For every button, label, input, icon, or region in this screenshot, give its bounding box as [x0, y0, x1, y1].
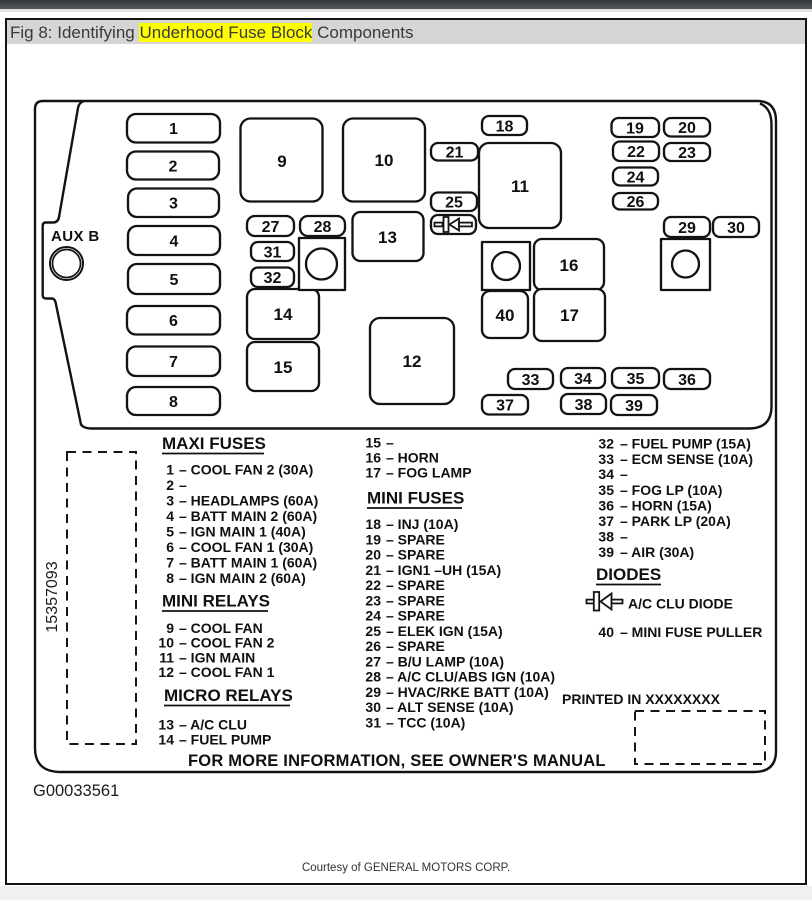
svg-text:– AIR (30A): – AIR (30A)	[620, 544, 694, 560]
svg-text:1: 1	[169, 121, 178, 138]
svg-text:24: 24	[365, 608, 381, 624]
svg-text:PRINTED IN XXXXXXXX: PRINTED IN XXXXXXXX	[562, 691, 721, 707]
svg-text:20: 20	[678, 120, 696, 137]
svg-text:23: 23	[678, 145, 696, 162]
svg-text:– IGN MAIN: – IGN MAIN	[179, 649, 255, 665]
svg-text:15357093: 15357093	[44, 561, 61, 632]
svg-text:– ALT SENSE (10A): – ALT SENSE (10A)	[386, 699, 514, 715]
svg-text:12: 12	[158, 664, 174, 680]
svg-text:–: –	[620, 529, 628, 545]
svg-text:31: 31	[365, 714, 381, 730]
svg-text:40: 40	[598, 624, 614, 640]
svg-text:27: 27	[262, 219, 280, 236]
svg-text:MINI FUSES: MINI FUSES	[367, 489, 464, 508]
svg-text:– COOL FAN: – COOL FAN	[179, 620, 263, 636]
svg-text:–: –	[386, 435, 394, 451]
svg-text:– MINI FUSE PULLER: – MINI FUSE PULLER	[620, 624, 762, 640]
svg-text:9: 9	[166, 620, 174, 636]
svg-text:–: –	[179, 477, 187, 493]
svg-text:– A/C CLU: – A/C CLU	[179, 717, 247, 733]
svg-text:27: 27	[365, 653, 381, 669]
svg-text:10: 10	[158, 635, 174, 651]
svg-text:– FOG LAMP: – FOG LAMP	[386, 465, 472, 481]
svg-text:– SPARE: – SPARE	[386, 608, 445, 624]
svg-text:29: 29	[678, 220, 696, 237]
svg-text:16: 16	[365, 450, 381, 466]
svg-text:33: 33	[598, 451, 614, 467]
svg-text:7: 7	[166, 555, 174, 571]
svg-text:3: 3	[166, 493, 174, 509]
svg-text:MINI RELAYS: MINI RELAYS	[162, 592, 270, 611]
svg-text:35: 35	[627, 371, 645, 388]
svg-text:21: 21	[365, 562, 381, 578]
svg-text:– FUEL PUMP (15A): – FUEL PUMP (15A)	[620, 436, 751, 452]
svg-text:G00033561: G00033561	[33, 782, 119, 800]
svg-text:19: 19	[365, 531, 381, 547]
svg-text:– HEADLAMPS (60A): – HEADLAMPS (60A)	[179, 493, 318, 509]
svg-text:8: 8	[169, 394, 178, 411]
svg-text:MICRO RELAYS: MICRO RELAYS	[164, 686, 293, 705]
svg-text:– TCC (10A): – TCC (10A)	[386, 714, 465, 730]
svg-text:4: 4	[166, 508, 174, 524]
svg-text:15: 15	[365, 435, 381, 451]
svg-text:14: 14	[158, 732, 174, 748]
svg-text:– HORN: – HORN	[386, 450, 439, 466]
svg-text:–: –	[620, 466, 628, 482]
svg-text:29: 29	[365, 684, 381, 700]
svg-text:4: 4	[170, 234, 179, 251]
svg-text:6: 6	[166, 539, 174, 555]
svg-text:– BATT MAIN 2 (60A): – BATT MAIN 2 (60A)	[179, 508, 317, 524]
svg-text:32: 32	[598, 436, 614, 452]
svg-text:FOR MORE INFORMATION, SEE OWNE: FOR MORE INFORMATION, SEE OWNER'S MANUAL	[188, 752, 606, 770]
svg-text:26: 26	[627, 194, 645, 211]
svg-text:21: 21	[446, 145, 464, 162]
svg-text:37: 37	[598, 513, 614, 529]
svg-text:– FUEL PUMP: – FUEL PUMP	[179, 732, 271, 748]
svg-text:17: 17	[560, 306, 579, 325]
svg-text:– FOG LP (10A): – FOG LP (10A)	[620, 482, 722, 498]
svg-text:22: 22	[627, 144, 645, 161]
svg-text:– A/C CLU/ABS IGN (10A): – A/C CLU/ABS IGN (10A)	[386, 669, 555, 685]
svg-text:– ECM SENSE (10A): – ECM SENSE (10A)	[620, 451, 753, 467]
svg-text:36: 36	[598, 498, 614, 514]
svg-text:5: 5	[166, 524, 174, 540]
svg-text:30: 30	[365, 699, 381, 715]
svg-text:39: 39	[625, 398, 643, 415]
svg-text:– COOL FAN 1 (30A): – COOL FAN 1 (30A)	[179, 539, 313, 555]
svg-text:– B/U LAMP (10A): – B/U LAMP (10A)	[386, 653, 504, 669]
svg-text:– COOL FAN 2 (30A): – COOL FAN 2 (30A)	[179, 462, 313, 478]
svg-text:DIODES: DIODES	[596, 565, 661, 584]
svg-text:A/C CLU DIODE: A/C CLU DIODE	[628, 596, 733, 612]
svg-text:30: 30	[727, 220, 745, 237]
svg-text:38: 38	[575, 397, 593, 414]
svg-text:11: 11	[159, 649, 174, 665]
svg-text:12: 12	[403, 352, 422, 371]
svg-text:14: 14	[274, 305, 293, 324]
svg-text:32: 32	[264, 270, 282, 287]
svg-text:5: 5	[170, 272, 179, 289]
svg-text:3: 3	[169, 196, 178, 213]
svg-text:23: 23	[365, 592, 381, 608]
svg-text:18: 18	[365, 516, 381, 532]
svg-text:AUX B: AUX B	[51, 228, 100, 245]
svg-text:– SPARE: – SPARE	[386, 547, 445, 563]
svg-text:7: 7	[169, 354, 178, 371]
svg-text:33: 33	[522, 372, 540, 389]
svg-text:– HORN (15A): – HORN (15A)	[620, 498, 712, 514]
svg-text:8: 8	[166, 570, 174, 586]
svg-text:40: 40	[496, 306, 515, 325]
svg-text:15: 15	[274, 358, 293, 377]
svg-text:1: 1	[166, 462, 174, 478]
svg-text:– IGN1 –UH (15A): – IGN1 –UH (15A)	[386, 562, 501, 578]
svg-text:19: 19	[626, 120, 644, 137]
svg-text:13: 13	[378, 228, 397, 247]
svg-text:– SPARE: – SPARE	[386, 577, 445, 593]
svg-text:22: 22	[365, 577, 381, 593]
svg-text:– INJ (10A): – INJ (10A)	[386, 516, 458, 532]
svg-text:– COOL FAN 1: – COOL FAN 1	[179, 664, 275, 680]
svg-text:– ELEK IGN (15A): – ELEK IGN (15A)	[386, 623, 503, 639]
svg-text:13: 13	[158, 717, 174, 733]
svg-text:– SPARE: – SPARE	[386, 638, 445, 654]
svg-text:– SPARE: – SPARE	[386, 592, 445, 608]
svg-text:2: 2	[166, 477, 174, 493]
svg-text:– SPARE: – SPARE	[386, 531, 445, 547]
svg-text:39: 39	[598, 544, 614, 560]
svg-text:28: 28	[365, 669, 381, 685]
svg-text:– HVAC/RKE BATT (10A): – HVAC/RKE BATT (10A)	[386, 684, 549, 700]
svg-text:11: 11	[511, 177, 529, 196]
svg-text:6: 6	[169, 313, 178, 330]
svg-text:28: 28	[314, 219, 332, 236]
svg-text:34: 34	[574, 371, 592, 388]
svg-text:16: 16	[560, 256, 579, 275]
svg-text:– BATT MAIN 1 (60A): – BATT MAIN 1 (60A)	[179, 555, 317, 571]
svg-text:36: 36	[678, 372, 696, 389]
svg-text:25: 25	[365, 623, 381, 639]
svg-text:31: 31	[264, 244, 282, 261]
svg-text:9: 9	[277, 152, 286, 171]
svg-text:– IGN MAIN 2 (60A): – IGN MAIN 2 (60A)	[179, 570, 306, 586]
svg-text:10: 10	[375, 151, 394, 170]
svg-text:38: 38	[598, 529, 614, 545]
svg-text:26: 26	[365, 638, 381, 654]
svg-text:Courtesy of GENERAL MOTORS COR: Courtesy of GENERAL MOTORS CORP.	[302, 862, 510, 874]
svg-text:– IGN MAIN 1 (40A): – IGN MAIN 1 (40A)	[179, 524, 306, 540]
svg-text:37: 37	[496, 398, 514, 415]
svg-text:34: 34	[598, 466, 614, 482]
svg-text:– COOL FAN 2: – COOL FAN 2	[179, 635, 275, 651]
svg-text:17: 17	[365, 465, 381, 481]
svg-text:2: 2	[169, 159, 178, 176]
svg-text:MAXI FUSES: MAXI FUSES	[162, 434, 266, 453]
svg-text:18: 18	[496, 118, 514, 135]
svg-text:20: 20	[365, 547, 381, 563]
svg-text:35: 35	[598, 482, 614, 498]
svg-text:25: 25	[445, 195, 463, 212]
svg-text:24: 24	[627, 169, 645, 186]
svg-text:– PARK LP (20A): – PARK LP (20A)	[620, 513, 731, 529]
